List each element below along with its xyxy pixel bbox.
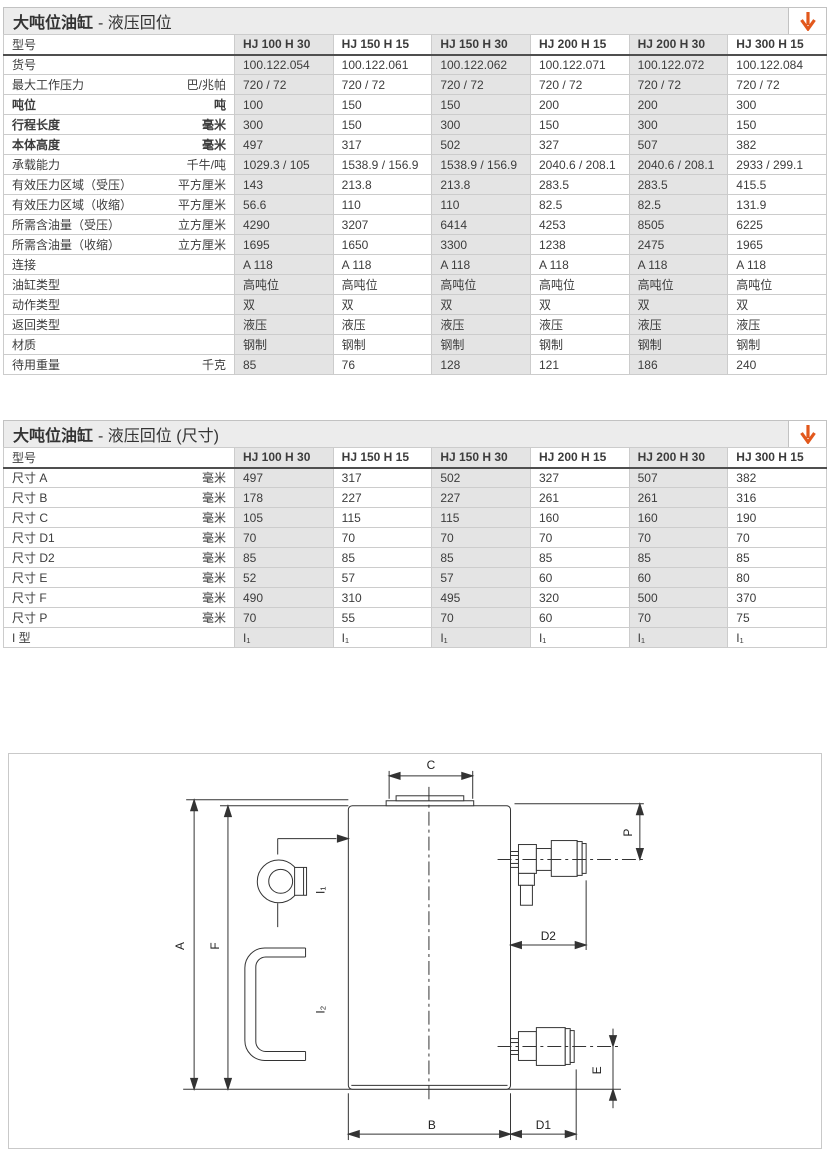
value-cell: 415.5 (728, 175, 827, 195)
row-label-cell: 尺寸 E毫米 (4, 568, 235, 588)
value-cell: 317 (333, 135, 432, 155)
table-row: 尺寸 F毫米490310495320500370 (4, 588, 827, 608)
row-label-cell: 最大工作压力巴/兆帕 (4, 75, 235, 95)
cylinder-technical-drawing: C A F P D2 E B D1 I₁ I₂ (9, 754, 821, 1148)
value-cell: 283.5 (530, 175, 629, 195)
value-cell: 2933 / 299.1 (728, 155, 827, 175)
value-cell: I₁ (333, 628, 432, 648)
table-row: I 型I₁I₁I₁I₁I₁I₁ (4, 628, 827, 648)
value-cell: 液压 (629, 315, 728, 335)
row-label-cell: 有效压力区域（收缩）平方厘米 (4, 195, 235, 215)
value-cell: 500 (629, 588, 728, 608)
label-E: E (590, 1066, 604, 1074)
column-header: HJ 150 H 15 (333, 35, 432, 55)
value-cell: 131.9 (728, 195, 827, 215)
column-header: HJ 300 H 15 (728, 448, 827, 468)
value-cell: 100 (235, 95, 334, 115)
table-row: 待用重量千克8576128121186240 (4, 355, 827, 375)
value-cell: 2040.6 / 208.1 (530, 155, 629, 175)
value-cell: 85 (333, 548, 432, 568)
down-arrow-icon (799, 11, 817, 31)
value-cell: 70 (333, 528, 432, 548)
label-D1: D1 (536, 1118, 552, 1132)
table-row: 尺寸 E毫米525757606080 (4, 568, 827, 588)
value-cell: 261 (530, 488, 629, 508)
table-row: 尺寸 C毫米105115115160160190 (4, 508, 827, 528)
row-unit: 毫米 (202, 609, 226, 626)
column-header: HJ 200 H 15 (530, 35, 629, 55)
value-cell: 283.5 (629, 175, 728, 195)
value-cell: 70 (235, 608, 334, 628)
drawing-lines (183, 771, 644, 1140)
value-cell: 76 (333, 355, 432, 375)
value-cell: 160 (530, 508, 629, 528)
value-cell: 1538.9 / 156.9 (333, 155, 432, 175)
row-label-cell: 返回类型 (4, 315, 235, 335)
value-cell: 300 (629, 115, 728, 135)
value-cell: I₁ (235, 628, 334, 648)
value-cell: 钢制 (629, 335, 728, 355)
value-cell: 100.122.071 (530, 55, 629, 75)
value-cell: 115 (432, 508, 531, 528)
table-row: 油缸类型高吨位高吨位高吨位高吨位高吨位高吨位 (4, 275, 827, 295)
model-header: 型号 (4, 35, 235, 55)
value-cell: 327 (530, 135, 629, 155)
value-cell: 150 (333, 95, 432, 115)
value-cell: 4253 (530, 215, 629, 235)
table-row: 所需含油量（受压）立方厘米429032076414425385056225 (4, 215, 827, 235)
column-header: HJ 150 H 30 (432, 35, 531, 55)
value-cell: 70 (728, 528, 827, 548)
value-cell: A 118 (530, 255, 629, 275)
value-cell: 100.122.054 (235, 55, 334, 75)
value-cell: 双 (333, 295, 432, 315)
value-cell: 双 (728, 295, 827, 315)
value-cell: 327 (530, 468, 629, 488)
value-cell: 110 (432, 195, 531, 215)
table-row: 最大工作压力巴/兆帕720 / 72720 / 72720 / 72720 / … (4, 75, 827, 95)
value-cell: 720 / 72 (432, 75, 531, 95)
row-label-cell: I 型 (4, 628, 235, 648)
column-header: HJ 150 H 15 (333, 448, 432, 468)
row-unit: 吨 (214, 96, 226, 113)
row-label: 尺寸 D2 (12, 551, 55, 565)
value-cell: 490 (235, 588, 334, 608)
row-unit: 立方厘米 (178, 216, 226, 233)
row-label: 油缸类型 (12, 278, 60, 292)
row-label-cell: 尺寸 D2毫米 (4, 548, 235, 568)
row-label: I 型 (12, 631, 31, 645)
value-cell: 720 / 72 (235, 75, 334, 95)
row-label-cell: 吨位吨 (4, 95, 235, 115)
value-cell: 80 (728, 568, 827, 588)
value-cell: 382 (728, 468, 827, 488)
table-row: 尺寸 A毫米497317502327507382 (4, 468, 827, 488)
value-cell: 1538.9 / 156.9 (432, 155, 531, 175)
row-label: 尺寸 B (12, 491, 47, 505)
table-row: 货号100.122.054100.122.061100.122.062100.1… (4, 55, 827, 75)
table-row: 本体高度毫米497317502327507382 (4, 135, 827, 155)
value-cell: 液压 (530, 315, 629, 335)
value-cell: A 118 (629, 255, 728, 275)
leader-I1 (278, 835, 349, 854)
value-cell: 70 (629, 528, 728, 548)
value-cell: 720 / 72 (629, 75, 728, 95)
value-cell: I₁ (728, 628, 827, 648)
value-cell: 310 (333, 588, 432, 608)
row-unit: 千牛/吨 (187, 156, 226, 173)
table-row: 尺寸 D2毫米858585858585 (4, 548, 827, 568)
value-cell: 70 (629, 608, 728, 628)
row-label: 尺寸 A (12, 471, 47, 485)
value-cell: 钢制 (432, 335, 531, 355)
value-cell: 3300 (432, 235, 531, 255)
value-cell: 6225 (728, 215, 827, 235)
row-label-cell: 材质 (4, 335, 235, 355)
value-cell: 82.5 (629, 195, 728, 215)
section-title-suffix: - 液压回位 (98, 9, 172, 33)
value-cell: 507 (629, 468, 728, 488)
spec-table: 型号 HJ 100 H 30 HJ 150 H 15 HJ 150 H 30 H… (3, 34, 827, 375)
value-cell: I₁ (629, 628, 728, 648)
table-row: 有效压力区域（收缩）平方厘米56.611011082.582.5131.9 (4, 195, 827, 215)
label-D2: D2 (541, 929, 557, 943)
row-label: 吨位 (12, 98, 36, 112)
value-cell: A 118 (333, 255, 432, 275)
value-cell: 52 (235, 568, 334, 588)
value-cell: 1029.3 / 105 (235, 155, 334, 175)
value-cell: 186 (629, 355, 728, 375)
value-cell: 300 (235, 115, 334, 135)
value-cell: 82.5 (530, 195, 629, 215)
row-label: 所需含油量（受压） (12, 218, 120, 232)
value-cell: 502 (432, 468, 531, 488)
label-I2: I₂ (313, 1005, 327, 1013)
row-label: 材质 (12, 338, 36, 352)
row-label: 承载能力 (12, 158, 60, 172)
value-cell: 502 (432, 135, 531, 155)
dim-E (610, 1029, 617, 1109)
dim-F (224, 806, 231, 1090)
value-cell: 85 (728, 548, 827, 568)
row-label: 行程长度 (12, 118, 60, 132)
section-title: 大吨位油缸 - 液压回位 (尺寸) (4, 421, 788, 447)
value-cell: 370 (728, 588, 827, 608)
row-label-cell: 尺寸 A毫米 (4, 468, 235, 488)
section-dimensions: 大吨位油缸 - 液压回位 (尺寸) 型号 HJ 100 H 30 HJ 150 … (3, 420, 827, 648)
value-cell: 57 (333, 568, 432, 588)
row-label-cell: 尺寸 D1毫米 (4, 528, 235, 548)
label-F: F (208, 942, 222, 949)
value-cell: 190 (728, 508, 827, 528)
value-cell: 液压 (235, 315, 334, 335)
value-cell: 100.122.061 (333, 55, 432, 75)
value-cell: 150 (728, 115, 827, 135)
table-row: 承载能力千牛/吨1029.3 / 1051538.9 / 156.91538.9… (4, 155, 827, 175)
label-P: P (621, 829, 635, 837)
row-unit: 毫米 (202, 569, 226, 586)
value-cell: 160 (629, 508, 728, 528)
table-row: 动作类型双双双双双双 (4, 295, 827, 315)
row-unit: 巴/兆帕 (187, 76, 226, 93)
section-header: 大吨位油缸 - 液压回位 (尺寸) (3, 420, 827, 447)
technical-drawing-panel: C A F P D2 E B D1 I₁ I₂ (8, 753, 822, 1149)
value-cell: 85 (432, 548, 531, 568)
carry-handle (245, 948, 306, 1060)
value-cell: 60 (530, 608, 629, 628)
section-title: 大吨位油缸 - 液压回位 (4, 8, 788, 34)
value-cell: 70 (432, 528, 531, 548)
value-cell: 1695 (235, 235, 334, 255)
value-cell: 6414 (432, 215, 531, 235)
value-cell: 178 (235, 488, 334, 508)
row-label-cell: 油缸类型 (4, 275, 235, 295)
table-row: 连接A 118A 118A 118A 118A 118A 118 (4, 255, 827, 275)
value-cell: 高吨位 (530, 275, 629, 295)
row-label: 尺寸 C (12, 511, 48, 525)
value-cell: 高吨位 (235, 275, 334, 295)
row-label: 货号 (12, 58, 36, 72)
value-cell: 3207 (333, 215, 432, 235)
value-cell: 双 (235, 295, 334, 315)
value-cell: 213.8 (333, 175, 432, 195)
row-label-cell: 货号 (4, 55, 235, 75)
row-unit: 毫米 (202, 529, 226, 546)
row-label: 返回类型 (12, 318, 60, 332)
table-row: 所需含油量（收缩）立方厘米169516503300123824751965 (4, 235, 827, 255)
column-header: HJ 200 H 15 (530, 448, 629, 468)
coupler-upper (511, 841, 587, 906)
dim-B (348, 1093, 510, 1140)
dim-A (191, 800, 198, 1090)
section-title-main: 大吨位油缸 (13, 422, 93, 446)
value-cell: 227 (432, 488, 531, 508)
row-label-cell: 所需含油量（收缩）立方厘米 (4, 235, 235, 255)
value-cell: 1965 (728, 235, 827, 255)
value-cell: 85 (235, 548, 334, 568)
section-title-main: 大吨位油缸 (13, 9, 93, 33)
column-header: HJ 300 H 15 (728, 35, 827, 55)
row-label: 待用重量 (12, 358, 60, 372)
row-unit: 千克 (202, 356, 226, 373)
table-row: 返回类型液压液压液压液压液压液压 (4, 315, 827, 335)
down-arrow-icon (799, 424, 817, 444)
row-label-cell: 有效压力区域（受压）平方厘米 (4, 175, 235, 195)
label-B: B (428, 1118, 436, 1132)
value-cell: 85 (530, 548, 629, 568)
datasheet-page: 大吨位油缸 - 液压回位 型号 HJ 100 H 30 HJ 150 H 15 (0, 0, 830, 1159)
row-label: 有效压力区域（受压） (12, 178, 132, 192)
value-cell: 双 (530, 295, 629, 315)
row-unit: 毫米 (202, 116, 226, 133)
value-cell: 115 (333, 508, 432, 528)
value-cell: 495 (432, 588, 531, 608)
value-cell: 100.122.062 (432, 55, 531, 75)
value-cell: 720 / 72 (530, 75, 629, 95)
column-header: HJ 100 H 30 (235, 448, 334, 468)
value-cell: 高吨位 (629, 275, 728, 295)
row-label: 尺寸 P (12, 611, 47, 625)
table-row: 吨位吨100150150200200300 (4, 95, 827, 115)
row-label: 动作类型 (12, 298, 60, 312)
row-label: 最大工作压力 (12, 78, 84, 92)
row-unit: 立方厘米 (178, 236, 226, 253)
value-cell: 1238 (530, 235, 629, 255)
value-cell: 213.8 (432, 175, 531, 195)
value-cell: 钢制 (333, 335, 432, 355)
table-row: 尺寸 P毫米705570607075 (4, 608, 827, 628)
value-cell: 高吨位 (728, 275, 827, 295)
value-cell: 液压 (432, 315, 531, 335)
value-cell: 液压 (728, 315, 827, 335)
row-label-cell: 所需含油量（受压）立方厘米 (4, 215, 235, 235)
value-cell: 双 (629, 295, 728, 315)
value-cell: 75 (728, 608, 827, 628)
value-cell: 200 (629, 95, 728, 115)
piston-saddle (386, 796, 474, 806)
value-cell: 261 (629, 488, 728, 508)
value-cell: 4290 (235, 215, 334, 235)
value-cell: 316 (728, 488, 827, 508)
row-label-cell: 连接 (4, 255, 235, 275)
row-label-cell: 尺寸 F毫米 (4, 588, 235, 608)
value-cell: 2475 (629, 235, 728, 255)
dim-C (389, 771, 473, 799)
row-label-cell: 尺寸 C毫米 (4, 508, 235, 528)
table-row: 行程长度毫米300150300150300150 (4, 115, 827, 135)
value-cell: A 118 (235, 255, 334, 275)
value-cell: 1650 (333, 235, 432, 255)
value-cell: 105 (235, 508, 334, 528)
section-title-suffix: - 液压回位 (尺寸) (98, 422, 219, 446)
value-cell: 100.122.072 (629, 55, 728, 75)
row-label-cell: 尺寸 P毫米 (4, 608, 235, 628)
value-cell: 720 / 72 (728, 75, 827, 95)
value-cell: 150 (530, 115, 629, 135)
value-cell: 85 (629, 548, 728, 568)
value-cell: 100.122.084 (728, 55, 827, 75)
row-unit: 毫米 (202, 509, 226, 526)
row-label: 尺寸 D1 (12, 531, 55, 545)
value-cell: 150 (432, 95, 531, 115)
row-unit: 毫米 (202, 469, 226, 486)
column-header: HJ 200 H 30 (629, 448, 728, 468)
lifting-eyebolt (257, 860, 306, 927)
table-row: 尺寸 B毫米178227227261261316 (4, 488, 827, 508)
value-cell: A 118 (432, 255, 531, 275)
model-header: 型号 (4, 448, 235, 468)
dimension-table: 型号 HJ 100 H 30 HJ 150 H 15 HJ 150 H 30 H… (3, 447, 827, 648)
value-cell: 300 (432, 115, 531, 135)
value-cell: 70 (432, 608, 531, 628)
value-cell: 双 (432, 295, 531, 315)
value-cell: 8505 (629, 215, 728, 235)
label-I1: I₁ (313, 887, 327, 894)
value-cell: 720 / 72 (333, 75, 432, 95)
row-label-cell: 尺寸 B毫米 (4, 488, 235, 508)
row-label: 本体高度 (12, 138, 60, 152)
row-unit: 平方厘米 (178, 196, 226, 213)
label-A: A (173, 942, 187, 950)
value-cell: 300 (728, 95, 827, 115)
label-C: C (427, 758, 436, 772)
column-header: HJ 100 H 30 (235, 35, 334, 55)
value-cell: 497 (235, 135, 334, 155)
section-header: 大吨位油缸 - 液压回位 (3, 7, 827, 34)
value-cell: 液压 (333, 315, 432, 335)
value-cell: 55 (333, 608, 432, 628)
row-unit: 毫米 (202, 589, 226, 606)
value-cell: 497 (235, 468, 334, 488)
value-cell: 钢制 (235, 335, 334, 355)
row-label-cell: 行程长度毫米 (4, 115, 235, 135)
value-cell: 317 (333, 468, 432, 488)
row-label: 连接 (12, 258, 36, 272)
value-cell: 110 (333, 195, 432, 215)
value-cell: 320 (530, 588, 629, 608)
header-row: 型号 HJ 100 H 30 HJ 150 H 15 HJ 150 H 30 H… (4, 448, 827, 468)
value-cell: 56.6 (235, 195, 334, 215)
row-label-cell: 本体高度毫米 (4, 135, 235, 155)
row-label: 有效压力区域（收缩） (12, 198, 132, 212)
value-cell: 57 (432, 568, 531, 588)
value-cell: 382 (728, 135, 827, 155)
table-row: 尺寸 D1毫米707070707070 (4, 528, 827, 548)
row-unit: 平方厘米 (178, 176, 226, 193)
column-header: HJ 200 H 30 (629, 35, 728, 55)
value-cell: 2040.6 / 208.1 (629, 155, 728, 175)
row-label: 所需含油量（收缩） (12, 238, 120, 252)
value-cell: 高吨位 (333, 275, 432, 295)
table-row: 有效压力区域（受压）平方厘米143213.8213.8283.5283.5415… (4, 175, 827, 195)
value-cell: 钢制 (530, 335, 629, 355)
row-label: 尺寸 F (12, 591, 47, 605)
value-cell: 高吨位 (432, 275, 531, 295)
value-cell: 70 (235, 528, 334, 548)
section-jump-button[interactable] (788, 421, 826, 447)
value-cell: I₁ (432, 628, 531, 648)
section-specifications: 大吨位油缸 - 液压回位 型号 HJ 100 H 30 HJ 150 H 15 (3, 7, 827, 375)
row-unit: 毫米 (202, 489, 226, 506)
row-label-cell: 待用重量千克 (4, 355, 235, 375)
value-cell: 143 (235, 175, 334, 195)
value-cell: 227 (333, 488, 432, 508)
value-cell: 60 (530, 568, 629, 588)
value-cell: 85 (235, 355, 334, 375)
row-unit: 毫米 (202, 136, 226, 153)
value-cell: 150 (333, 115, 432, 135)
value-cell: I₁ (530, 628, 629, 648)
table-row: 材质钢制钢制钢制钢制钢制钢制 (4, 335, 827, 355)
section-jump-button[interactable] (788, 8, 826, 34)
value-cell: 钢制 (728, 335, 827, 355)
row-label-cell: 动作类型 (4, 295, 235, 315)
value-cell: 128 (432, 355, 531, 375)
value-cell: 507 (629, 135, 728, 155)
value-cell: 240 (728, 355, 827, 375)
row-unit: 毫米 (202, 549, 226, 566)
value-cell: 70 (530, 528, 629, 548)
header-row: 型号 HJ 100 H 30 HJ 150 H 15 HJ 150 H 30 H… (4, 35, 827, 55)
value-cell: 60 (629, 568, 728, 588)
value-cell: 200 (530, 95, 629, 115)
value-cell: A 118 (728, 255, 827, 275)
row-label-cell: 承载能力千牛/吨 (4, 155, 235, 175)
value-cell: 121 (530, 355, 629, 375)
column-header: HJ 150 H 30 (432, 448, 531, 468)
row-label: 尺寸 E (12, 571, 47, 585)
